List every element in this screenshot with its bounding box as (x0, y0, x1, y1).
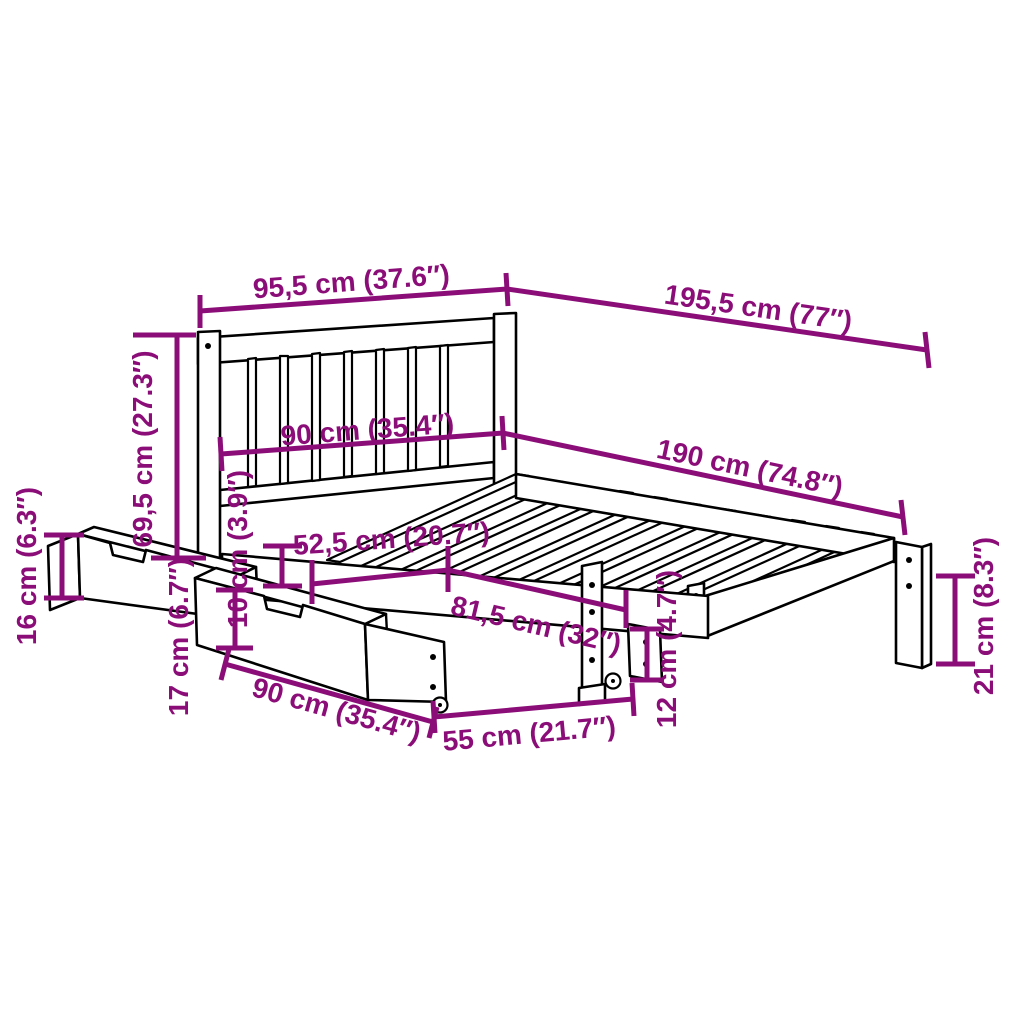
dim-tick (506, 273, 508, 306)
screw-dot (430, 654, 436, 660)
headboard-right-post (494, 313, 516, 484)
dimension-label-bed-length: 190 cm (74.8″) (654, 433, 846, 502)
screw-dot (906, 583, 912, 589)
dimension-label-drawer-front-height: 16 cm (6.3″) (11, 487, 42, 645)
drawer-end-panel (365, 624, 446, 702)
foot-leg-side-face (922, 544, 931, 668)
headboard-left-post (198, 331, 220, 562)
dimension-label-underbed-clearance: 12 cm (4.7″) (651, 570, 682, 728)
headboard-lower-rail (220, 462, 494, 506)
dim-tick (220, 437, 222, 471)
dimension-label-side-rail-height: 10 cm (3.9″) (222, 470, 253, 628)
caster-wheel (606, 674, 621, 689)
dim-tick (632, 683, 634, 716)
screw-dot (205, 343, 211, 349)
screw-dot (906, 557, 912, 563)
headboard-slat (408, 347, 416, 471)
headboard-slat (440, 345, 448, 467)
dimension-label-leg-height: 21 cm (8.3″) (968, 537, 999, 695)
dimension-label-drawer-depth: 55 cm (21.7″) (441, 710, 617, 757)
dimension-label-headboard-height: 69,5 cm (27.3″) (127, 350, 158, 547)
diagram-canvas: 95,5 cm (37.6″) 195,5 cm (77″) 90 cm (35… (0, 0, 1024, 1024)
headboard-slat (248, 358, 256, 487)
headboard-slat (376, 349, 384, 474)
screw-dot (430, 684, 436, 690)
dimension-label-bed-width: 90 cm (35.4″) (280, 408, 456, 452)
dim-tick (433, 701, 435, 733)
headboard-slat (344, 351, 352, 477)
dim-tick (901, 500, 905, 535)
screw-dot (589, 657, 595, 663)
screw-dot (589, 609, 595, 615)
dimension-label-drawer-side-height: 17 cm (6.7″) (163, 558, 194, 716)
dim-tick (502, 416, 504, 450)
dim-tick (925, 332, 929, 368)
bed-frame-dimension-diagram: 95,5 cm (37.6″) 195,5 cm (77″) 90 cm (35… (0, 0, 1024, 1024)
screw-dot (589, 582, 595, 588)
